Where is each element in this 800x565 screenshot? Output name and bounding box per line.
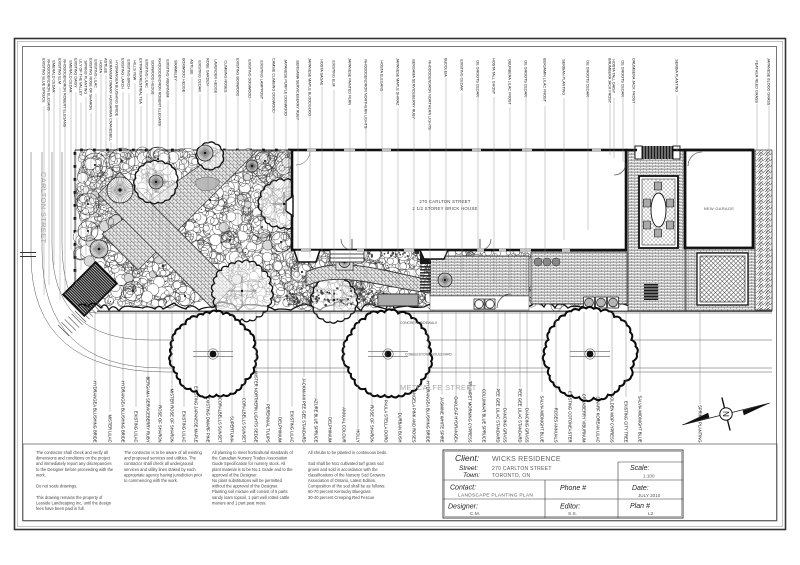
svg-text:CONCRETE SIDEWALK: CONCRETE SIDEWALK bbox=[400, 321, 438, 325]
svg-text:ROSE OF SHARON: ROSE OF SHARON bbox=[158, 405, 163, 442]
svg-text:services and utility lines sta: services and utility lines staked by eac… bbox=[124, 467, 196, 472]
svg-text:the Canadian Nursery Trades As: the Canadian Nursery Trades Association bbox=[212, 456, 288, 461]
svg-text:PERENNIAL TULIPS: PERENNIAL TULIPS bbox=[266, 404, 271, 443]
svg-text:DE GROOTS CEDAR: DE GROOTS CEDAR bbox=[586, 60, 590, 97]
svg-text:to commencing with the work.: to commencing with the work. bbox=[124, 478, 178, 483]
svg-text:ASTILBE: ASTILBE bbox=[190, 59, 194, 75]
svg-text:classifications of the Nursery: classifications of the Nursery Sod Growe… bbox=[308, 472, 385, 477]
svg-text:EXISTING ROSE OF SHARON: EXISTING ROSE OF SHARON bbox=[89, 58, 93, 110]
svg-text:BUDDLEIA: BUDDLEIA bbox=[444, 58, 448, 77]
svg-text:Plan #: Plan # bbox=[630, 503, 650, 510]
svg-text:Editor:: Editor: bbox=[560, 504, 580, 511]
svg-text:The contractor is to be aware: The contractor is to be aware of all exi… bbox=[124, 450, 203, 455]
svg-text:HOSTA TALL DAISY: HOSTA TALL DAISY bbox=[612, 59, 616, 93]
svg-text:CORALBELLS SUNSET: CORALBELLS SUNSET bbox=[218, 398, 223, 443]
svg-text:EXISTING CEDAR: EXISTING CEDAR bbox=[198, 60, 202, 92]
svg-text:EXISTING BOXWOOD: EXISTING BOXWOOD bbox=[236, 58, 240, 97]
svg-text:GERANIUM DWARF HUNGARIAN CRANE: GERANIUM DWARF HUNGARIAN CRANESBILL bbox=[109, 59, 113, 141]
svg-text:Street:: Street: bbox=[459, 465, 478, 472]
svg-text:HOLLY: HOLLY bbox=[356, 429, 361, 442]
svg-text:fees have been paid in full.: fees have been paid in full. bbox=[36, 506, 85, 511]
svg-text:Phone #: Phone # bbox=[560, 485, 586, 492]
svg-text:LAVENDER HEDGE: LAVENDER HEDGE bbox=[214, 59, 218, 94]
svg-text:60-70 percent Kentucky Bluegra: 60-70 percent Kentucky Bluegrass bbox=[308, 489, 371, 494]
svg-text:ANNUAL COLOUR: ANNUAL COLOUR bbox=[342, 407, 347, 442]
svg-text:BERGAMA SERVICEBERRY RUBY: BERGAMA SERVICEBERRY RUBY bbox=[296, 60, 300, 120]
svg-text:EXISTING LILAC: EXISTING LILAC bbox=[290, 411, 295, 443]
svg-text:EXISTING LILAC: EXISTING LILAC bbox=[182, 411, 187, 443]
svg-text:DRUMBERA JACK FROST: DRUMBERA JACK FROST bbox=[632, 58, 636, 104]
svg-text:BERGAMA SERVICEBERRY RUBY: BERGAMA SERVICEBERRY RUBY bbox=[412, 59, 416, 119]
svg-text:EXISTING ELM: EXISTING ELM bbox=[58, 58, 62, 84]
svg-text:COBBLESTONE BOULEVARD: COBBLESTONE BOULEVARD bbox=[405, 353, 453, 357]
svg-text:OAKLEAF HYDRANGEA: OAKLEAF HYDRANGEA bbox=[454, 396, 459, 442]
svg-text:HILLS YEW: HILLS YEW bbox=[133, 60, 137, 80]
svg-text:sandy loam topsoil, 1 part wel: sandy loam topsoil, 1 part well rotted c… bbox=[212, 495, 290, 500]
svg-text:CRANBERRY VIBURNUM: CRANBERRY VIBURNUM bbox=[582, 394, 587, 443]
svg-text:BERJAMIN LILAC FROST: BERJAMIN LILAC FROST bbox=[543, 58, 547, 102]
svg-text:DELPHINIUM: DELPHINIUM bbox=[278, 417, 283, 443]
svg-text:METCALFE STREET: METCALFE STREET bbox=[400, 383, 477, 392]
svg-text:SPRING PLANTING: SPRING PLANTING bbox=[84, 60, 88, 94]
svg-text:ROSE OF SHARON: ROSE OF SHARON bbox=[370, 405, 375, 442]
svg-text:RHODODENDRON NORTHERN LIGHTS: RHODODENDRON NORTHERN LIGHTS bbox=[428, 60, 432, 130]
svg-text:to the Designer before proceed: to the Designer before proceeding with t… bbox=[36, 467, 114, 472]
svg-text:DURBAN BUSH: DURBAN BUSH bbox=[398, 413, 403, 443]
svg-text:EXISTING COTONEASTER: EXISTING COTONEASTER bbox=[568, 391, 573, 443]
svg-text:WICKS RESIDENCE: WICKS RESIDENCE bbox=[492, 456, 561, 463]
svg-text:approval of the Designer.: approval of the Designer. bbox=[212, 472, 258, 477]
svg-text:EXISTING DOGWOOD: EXISTING DOGWOOD bbox=[248, 59, 252, 98]
svg-text:ANGELA PINK AND ROSES: ANGELA PINK AND ROSES bbox=[412, 390, 417, 442]
svg-text:PAULA STELLA DORO: PAULA STELLA DORO bbox=[384, 400, 389, 443]
svg-text:Guide Specification for nurser: Guide Specification for nursery stock. A… bbox=[212, 461, 285, 466]
svg-text:JAPANESE PAINTED FERN: JAPANESE PAINTED FERN bbox=[348, 58, 352, 105]
svg-text:appropriate agency having juri: appropriate agency having jurisdiction p… bbox=[124, 472, 203, 477]
svg-text:EXISTING LARCH: EXISTING LARCH bbox=[121, 58, 125, 89]
svg-text:RHODODENDRON NORTHERN LIGHTS: RHODODENDRON NORTHERN LIGHTS bbox=[364, 59, 368, 129]
svg-text:1:100: 1:100 bbox=[643, 474, 655, 479]
svg-text:DE GROOTS CEDAR: DE GROOTS CEDAR bbox=[524, 60, 528, 97]
svg-text:This drawing remains the prope: This drawing remains the property of bbox=[36, 495, 103, 500]
svg-text:EXISTING LILAC: EXISTING LILAC bbox=[94, 59, 98, 88]
svg-text:HYDRANGEA BLUSHING BRIDE: HYDRANGEA BLUSHING BRIDE bbox=[93, 381, 98, 443]
svg-text:BOXWOOD HEDGE: BOXWOOD HEDGE bbox=[182, 58, 186, 93]
svg-text:BRAMBLEY: BRAMBLEY bbox=[174, 60, 178, 81]
svg-text:Client:: Client: bbox=[455, 453, 480, 463]
svg-text:work.: work. bbox=[36, 472, 46, 477]
svg-text:CORALBELLS SUNSET: CORALBELLS SUNSET bbox=[242, 398, 247, 443]
svg-text:BERGAMA SERVICEBERRY RUBY: BERGAMA SERVICEBERRY RUBY bbox=[146, 376, 151, 442]
svg-text:Contact:: Contact: bbox=[450, 485, 476, 492]
svg-text:LILY OF THE VALLEY: LILY OF THE VALLEY bbox=[79, 59, 83, 96]
svg-text:DEURBERA LILAC FROST: DEURBERA LILAC FROST bbox=[508, 59, 512, 105]
svg-text:and immediately report any dis: and immediately report any discrepancies bbox=[36, 461, 112, 466]
svg-text:DANCING GRASS: DANCING GRASS bbox=[525, 408, 530, 443]
svg-text:CAMSIE CLIMBING DOGWOOD: CAMSIE CLIMBING DOGWOOD bbox=[272, 58, 276, 113]
svg-text:RHODODENDRON ROBERT ELEGANS: RHODODENDRON ROBERT ELEGANS bbox=[158, 58, 162, 126]
svg-text:AZURE BLUE SPRUCE: AZURE BLUE SPRUCE bbox=[314, 398, 319, 442]
svg-text:N: N bbox=[722, 411, 731, 417]
svg-text:JAPANESE BLOOD GRASS: JAPANESE BLOOD GRASS bbox=[767, 58, 771, 106]
svg-text:HOSTA ELEGANS: HOSTA ELEGANS bbox=[380, 60, 384, 91]
svg-text:SERBIAN PLANTING: SERBIAN PLANTING bbox=[562, 59, 566, 95]
svg-text:HOSTA: HOSTA bbox=[99, 60, 103, 73]
svg-text:MISTER LILAC: MISTER LILAC bbox=[108, 414, 113, 442]
svg-text:BRUMBERA JACK FROST: BRUMBERA JACK FROST bbox=[608, 58, 612, 104]
svg-text:plant material is to be No.1 G: plant material is to be No.1 Grade and t… bbox=[212, 467, 293, 472]
svg-text:Designer:: Designer: bbox=[448, 504, 478, 511]
svg-text:HYDRANGEA BLUSHING BRIDE: HYDRANGEA BLUSHING BRIDE bbox=[115, 60, 119, 116]
svg-text:EXISTING LILAC: EXISTING LILAC bbox=[134, 411, 139, 443]
svg-text:Town:: Town: bbox=[463, 472, 480, 479]
svg-text:grown and sold in accordance w: grown and sold in accordance with the bbox=[308, 467, 378, 472]
svg-text:SALVIA MIDNIGHT BLUE: SALVIA MIDNIGHT BLUE bbox=[638, 395, 643, 442]
svg-text:270 CARLTON STREET: 270 CARLTON STREET bbox=[419, 199, 470, 204]
svg-text:and proposed services and util: and proposed services and utilities. The bbox=[124, 456, 197, 461]
svg-text:without the approval of the De: without the approval of the Designer. bbox=[212, 484, 278, 489]
svg-text:EXTRATERRESTRIAL TEA: EXTRATERRESTRIAL TEA bbox=[139, 58, 143, 104]
svg-text:Sod shall be No1 cultivated tu: Sod shall be No1 cultivated turf grass s… bbox=[308, 461, 384, 466]
svg-text:DE GROOTS CEDAR: DE GROOTS CEDAR bbox=[621, 60, 625, 97]
svg-text:L2: L2 bbox=[648, 511, 654, 517]
svg-text:30-40 percent Creeping Red Fes: 30-40 percent Creeping Red Fescue bbox=[308, 495, 375, 500]
svg-text:SALVIA MIDNIGHT BLUE: SALVIA MIDNIGHT BLUE bbox=[540, 395, 545, 442]
svg-text:ROSE GARDEN: ROSE GARDEN bbox=[206, 58, 210, 86]
svg-text:HYDRANGEA BLUSHING BRIDE: HYDRANGEA BLUSHING BRIDE bbox=[121, 381, 126, 443]
svg-text:DWARF KOREAN LILAC: DWARF KOREAN LILAC bbox=[596, 397, 601, 443]
svg-text:EXISTING CEDAR: EXISTING CEDAR bbox=[460, 59, 464, 91]
svg-text:270 CARLTON STREET: 270 CARLTON STREET bbox=[492, 466, 552, 472]
svg-text:BOXWOOD HEDGE: BOXWOOD HEDGE bbox=[151, 60, 155, 95]
svg-text:Composition of the sod shall b: Composition of the sod shall be as follo… bbox=[308, 484, 385, 489]
svg-text:CLIMBING ROSES: CLIMBING ROSES bbox=[224, 60, 228, 93]
svg-text:Planting soil mixture will con: Planting soil mixture will consist of 5 … bbox=[212, 489, 288, 494]
svg-text:Leaside Landscaping Inc, until: Leaside Landscaping Inc, until the desig… bbox=[36, 500, 112, 505]
svg-text:EXISTING DAISY: EXISTING DAISY bbox=[74, 58, 78, 88]
svg-text:EXISTING VIBURNUM: EXISTING VIBURNUM bbox=[166, 59, 170, 97]
svg-text:SPRING PLANTING: SPRING PLANTING bbox=[698, 405, 703, 442]
svg-text:All planting to meet horticult: All planting to meet horticultural stand… bbox=[212, 450, 294, 455]
svg-text:All shrubs to be planted in co: All shrubs to be planted in continuous b… bbox=[308, 450, 387, 455]
svg-text:S.S.: S.S. bbox=[568, 511, 577, 517]
svg-text:HOSTA SAGAE: HOSTA SAGAE bbox=[320, 59, 324, 86]
svg-text:No plant substitutions will be: No plant substitutions will be permitted bbox=[212, 478, 283, 483]
svg-text:DE GROOTS CEDAR: DE GROOTS CEDAR bbox=[476, 60, 480, 97]
svg-text:EXISTING ELM: EXISTING ELM bbox=[332, 60, 336, 86]
svg-text:JASMINE WHITE SPIRE: JASMINE WHITE SPIRE bbox=[440, 397, 445, 443]
svg-text:Date:: Date: bbox=[632, 485, 649, 492]
svg-text:Scale:: Scale: bbox=[630, 465, 650, 472]
svg-text:2 1/2 STOREY BRICK HOUSE: 2 1/2 STOREY BRICK HOUSE bbox=[412, 206, 477, 211]
svg-text:EXISTING DWARF PINE: EXISTING DWARF PINE bbox=[206, 397, 211, 443]
svg-text:RHODODENDRON ELEGANS: RHODODENDRON ELEGANS bbox=[47, 59, 51, 111]
svg-text:EXISTING LILAC: EXISTING LILAC bbox=[145, 59, 149, 88]
svg-text:JAPANESE MAPLE BLOODGOOD: JAPANESE MAPLE BLOODGOOD bbox=[308, 58, 312, 117]
svg-text:JAPANESE MAPLE SHIRAZ: JAPANESE MAPLE SHIRAZ bbox=[396, 58, 400, 106]
svg-text:JAPANESE PURPLE DOGWOOD: JAPANESE PURPLE DOGWOOD bbox=[284, 59, 288, 116]
svg-text:C.M.: C.M. bbox=[470, 511, 480, 517]
svg-text:EXISTING LAMPPOST: EXISTING LAMPPOST bbox=[260, 60, 264, 99]
svg-text:RHODODENDRON ROBERT ELEGANS: RHODODENDRON ROBERT ELEGANS bbox=[63, 59, 67, 127]
svg-text:PEE GEE LILAC STANDARD: PEE GEE LILAC STANDARD bbox=[496, 389, 501, 443]
svg-text:manure and 1 part peat moss.: manure and 1 part peat moss. bbox=[212, 500, 267, 505]
svg-text:CARLTON STREET: CARLTON STREET bbox=[39, 172, 48, 244]
svg-text:EXISTING CITY TREE: EXISTING CITY TREE bbox=[624, 401, 629, 443]
svg-text:SUPERTUNIA: SUPERTUNIA bbox=[230, 416, 235, 443]
svg-text:FEATHER REED GRASS: FEATHER REED GRASS bbox=[755, 60, 759, 103]
svg-text:GOLDEN MOP CYPRESS: GOLDEN MOP CYPRESS bbox=[610, 394, 615, 443]
svg-text:LANDSCAPE PLANTING PLAN: LANDSCAPE PLANTING PLAN bbox=[458, 493, 533, 499]
svg-text:Do not scale drawings.: Do not scale drawings. bbox=[36, 484, 77, 489]
svg-text:DANCING GRASS: DANCING GRASS bbox=[503, 408, 508, 443]
svg-text:MISTER ROSE OF SHARON: MISTER ROSE OF SHARON bbox=[170, 389, 175, 443]
svg-text:DELPHINIUM: DELPHINIUM bbox=[328, 417, 333, 443]
svg-text:contractor shall check all und: contractor shall check all underground bbox=[124, 461, 194, 466]
svg-text:EXISTING JAPANESE MAPLE: EXISTING JAPANESE MAPLE bbox=[194, 386, 199, 443]
svg-text:dimensions and conditions on t: dimensions and conditions on the project bbox=[36, 456, 111, 461]
svg-text:EXISTING BIRCH: EXISTING BIRCH bbox=[127, 59, 131, 89]
svg-text:MISTER NORTHERN LIGHTS SEDGE: MISTER NORTHERN LIGHTS SEDGE bbox=[254, 371, 259, 443]
svg-text:ASTILBE: ASTILBE bbox=[104, 58, 108, 74]
svg-text:The contractor shall check and: The contractor shall check and verify al… bbox=[36, 450, 108, 455]
svg-text:ROSES ANNUALS: ROSES ANNUALS bbox=[554, 408, 559, 443]
svg-text:EMERALD CEDAR: EMERALD CEDAR bbox=[69, 60, 73, 92]
svg-text:JULY 2010: JULY 2010 bbox=[638, 493, 661, 498]
svg-text:TORONTO, ON: TORONTO, ON bbox=[492, 473, 530, 479]
svg-text:NEW GARAGE: NEW GARAGE bbox=[704, 206, 735, 211]
svg-text:HOSTA TALL GHOST: HOSTA TALL GHOST bbox=[492, 58, 496, 95]
svg-text:EMERALD CEDAR: EMERALD CEDAR bbox=[52, 60, 56, 92]
svg-text:PEE GEE LILAC STANDARD: PEE GEE LILAC STANDARD bbox=[518, 389, 523, 443]
svg-text:SERBIA PLANTING: SERBIA PLANTING bbox=[675, 59, 679, 92]
svg-text:EXISTING BLUE SPRUCE: EXISTING BLUE SPRUCE bbox=[42, 58, 46, 103]
svg-text:Association of Ontario, Latest: Association of Ontario, Latest Edition. bbox=[308, 478, 376, 483]
svg-text:JACKMANII PEE GEE STANDARD: JACKMANII PEE GEE STANDARD bbox=[302, 378, 307, 442]
svg-text:COLUMNAR BLUE SPRUCE: COLUMNAR BLUE SPRUCE bbox=[482, 389, 487, 443]
